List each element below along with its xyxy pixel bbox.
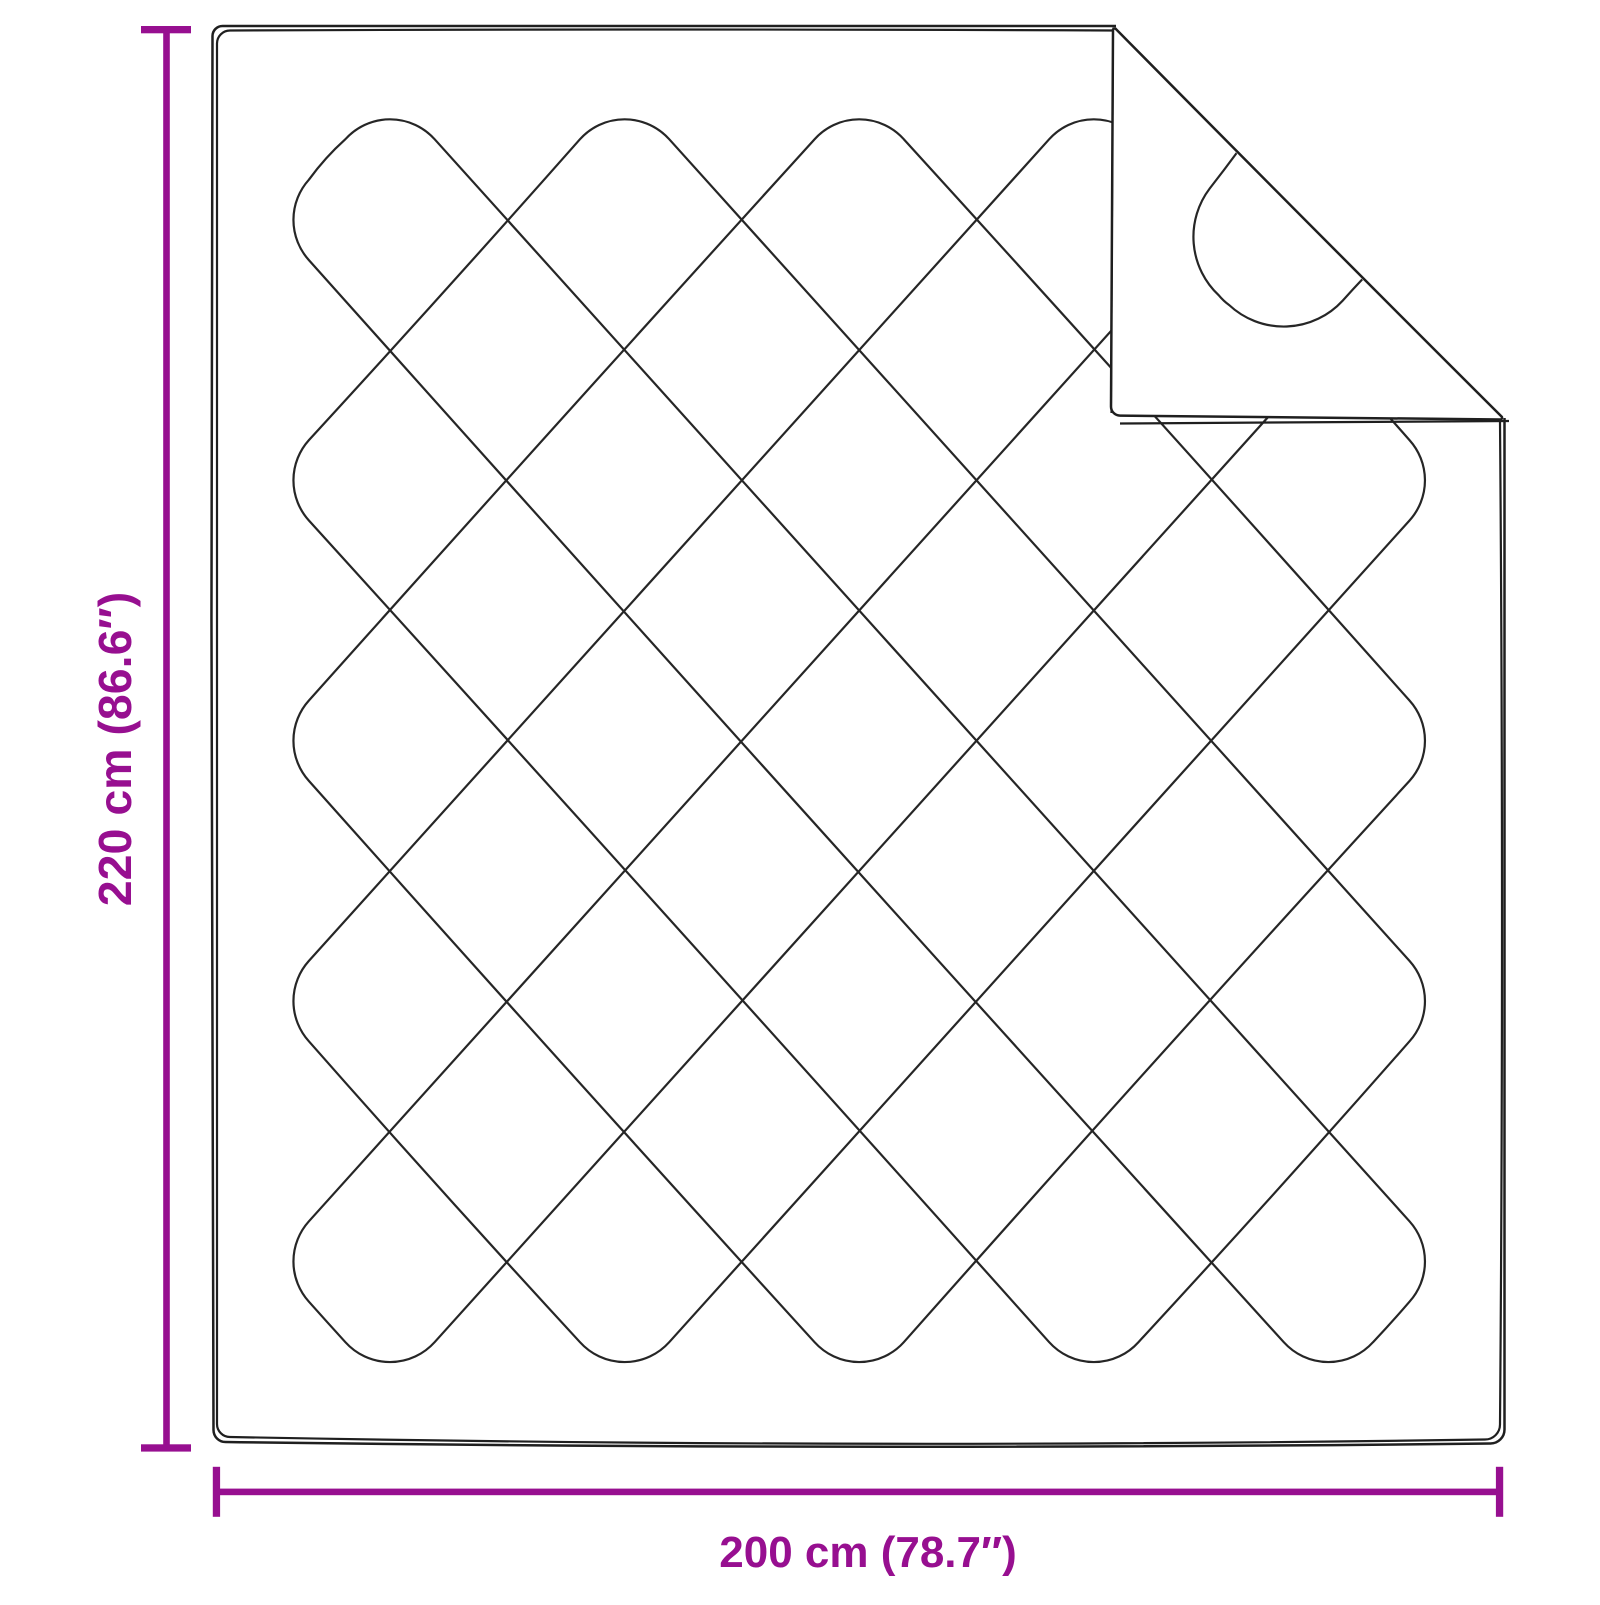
svg-text:220 cm (86.6″): 220 cm (86.6″)	[89, 592, 141, 906]
svg-text:200 cm (78.7″): 200 cm (78.7″)	[719, 1528, 1016, 1577]
